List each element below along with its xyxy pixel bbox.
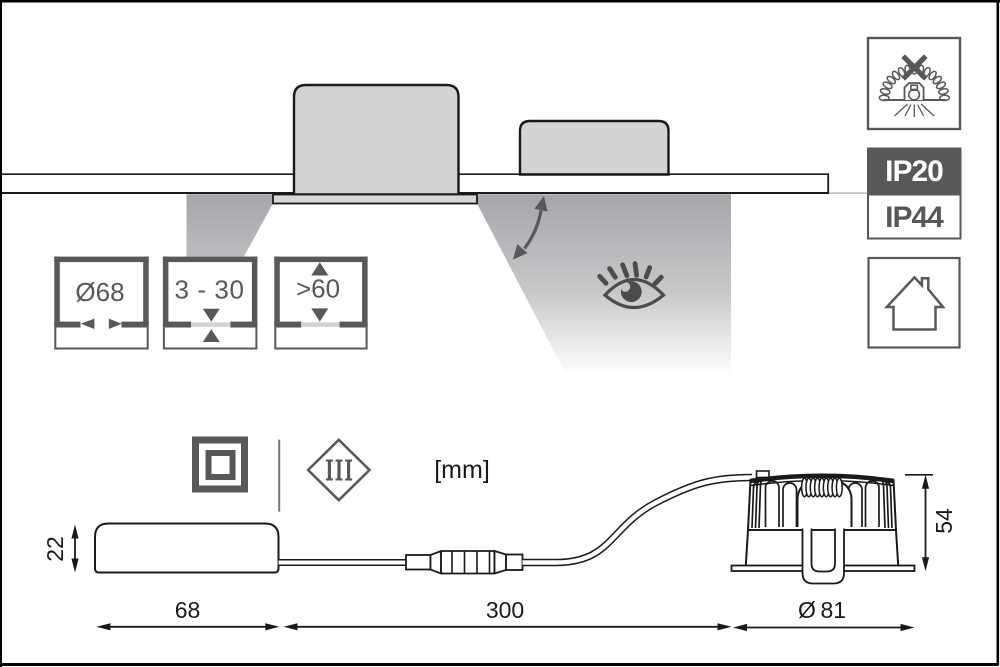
svg-text:54: 54 xyxy=(931,508,957,534)
svg-text:3 - 30: 3 - 30 xyxy=(174,275,244,305)
svg-text:Ø 81: Ø 81 xyxy=(798,597,846,623)
svg-text:IP44: IP44 xyxy=(885,201,944,234)
svg-text:300: 300 xyxy=(486,597,524,623)
svg-text:22: 22 xyxy=(42,536,68,562)
svg-text:Ø68: Ø68 xyxy=(75,277,124,307)
svg-text:[mm]: [mm] xyxy=(434,456,490,484)
svg-text:IP20: IP20 xyxy=(885,155,943,188)
svg-text:68: 68 xyxy=(175,597,201,623)
svg-text:>60: >60 xyxy=(296,274,340,304)
